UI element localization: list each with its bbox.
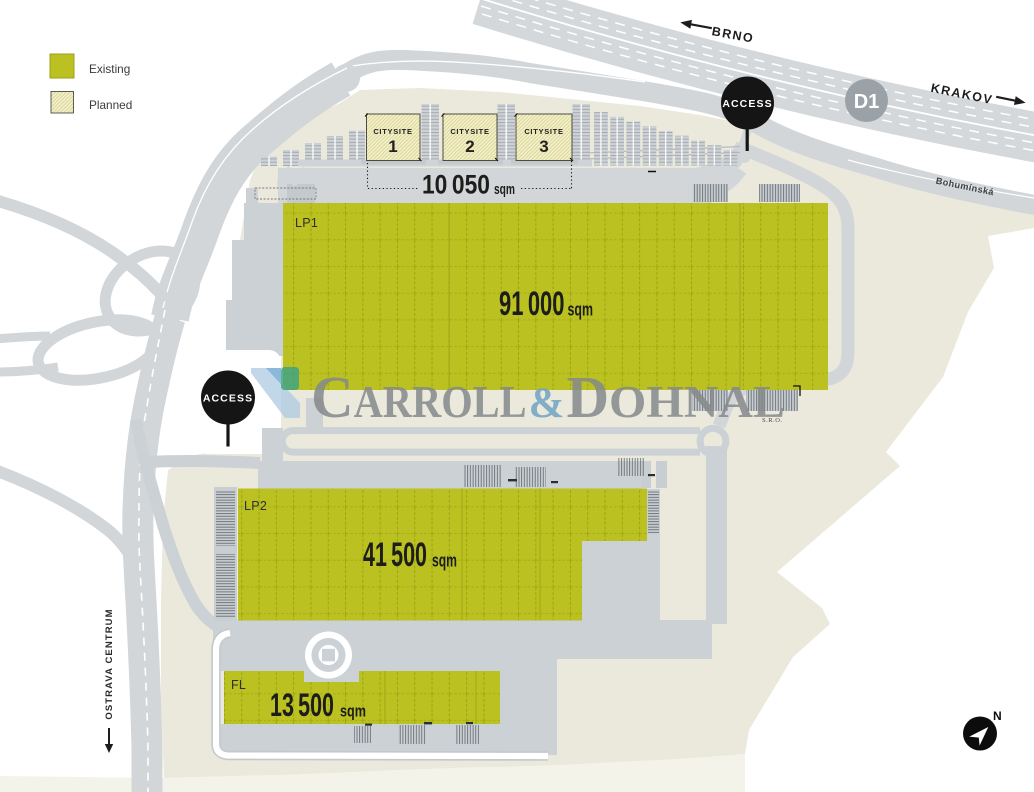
svg-text:FL: FL (231, 678, 246, 692)
svg-text:LP1: LP1 (295, 216, 318, 230)
svg-text:sqm: sqm (340, 702, 366, 721)
svg-text:sqm: sqm (568, 300, 594, 320)
svg-text:91 000: 91 000 (499, 285, 565, 323)
svg-text:Existing: Existing (89, 62, 130, 76)
svg-text:LP2: LP2 (244, 499, 267, 513)
svg-text:3: 3 (539, 137, 548, 156)
svg-text:ACCESS: ACCESS (203, 393, 253, 405)
svg-text:13 500: 13 500 (270, 687, 334, 723)
svg-text:CITYSITE: CITYSITE (373, 127, 412, 136)
svg-text:Planned: Planned (89, 98, 132, 112)
svg-text:OSTRAVA CENTRUM: OSTRAVA CENTRUM (104, 608, 115, 719)
svg-text:10 050: 10 050 (422, 170, 490, 200)
svg-text:sqm: sqm (494, 182, 515, 198)
svg-text:D1: D1 (854, 91, 880, 113)
svg-text:1: 1 (388, 137, 397, 156)
svg-text:CITYSITE: CITYSITE (450, 127, 489, 136)
svg-text:CITYSITE: CITYSITE (524, 127, 563, 136)
svg-text:sqm: sqm (432, 551, 457, 571)
svg-text:2: 2 (465, 137, 474, 156)
svg-text:ACCESS: ACCESS (722, 98, 772, 110)
svg-text:N: N (993, 709, 1002, 723)
svg-text:41 500: 41 500 (363, 536, 427, 574)
